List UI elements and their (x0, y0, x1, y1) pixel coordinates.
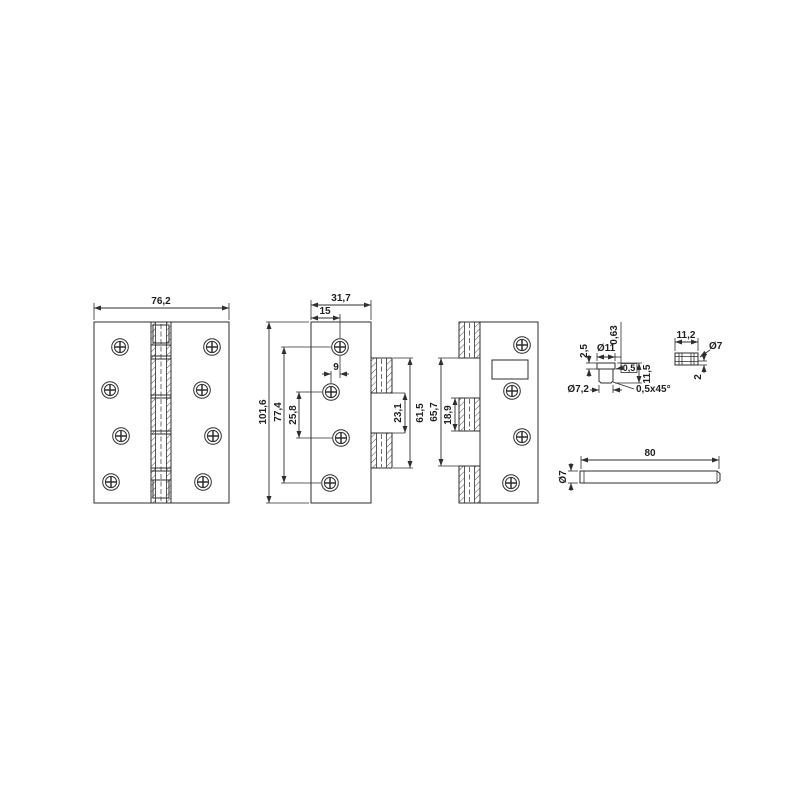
leaf-b-knuckles (459, 322, 480, 503)
screw-hole (323, 384, 340, 401)
screw-hole (205, 428, 222, 445)
pin-view: 80 Ø7 (558, 448, 720, 491)
dim-knuckle-span-a: 61,5 (415, 403, 426, 423)
screw-hole (113, 428, 130, 445)
dim-bushing-height: 11,5 (642, 364, 653, 383)
bushing-detail: Ø11 0,63 2,5 0,5 11,5 Ø7,2 0,5x45° (567, 322, 670, 395)
leaf-a-plate (311, 322, 371, 503)
dim-center-knuckle: 18,9 (443, 405, 454, 425)
leaf-a-side-view: 23,1 61,5 31,7 15 101,6 77,4 25,8 9 (258, 293, 426, 503)
screw-hole (103, 474, 120, 491)
screw-hole (514, 337, 531, 354)
screw-hole (514, 429, 531, 446)
dim-knuckle-gap: 23,1 (393, 403, 404, 423)
dim-chamfer: 0,5x45° (636, 384, 671, 395)
dim-shank-diameter: Ø7,2 (567, 384, 589, 395)
dim-leaf-height: 101,6 (258, 399, 269, 424)
dim-hole-span: 77,4 (273, 402, 284, 422)
dim-sleeve-length: 11,2 (677, 330, 696, 341)
front-view: 76,2 (94, 296, 229, 503)
dim-knuckle-span-b: 65,7 (429, 402, 440, 422)
dim-pin-diameter: Ø7 (558, 470, 569, 484)
dim-clearance: 0,63 (609, 325, 620, 345)
dim-front-width: 76,2 (151, 296, 171, 307)
technical-drawing-page: 76,2 23,1 61,5 (0, 0, 800, 800)
dim-hole-stagger: 9 (333, 362, 339, 373)
screw-hole (204, 339, 221, 356)
screw-hole (102, 382, 119, 399)
dim-leaf-width: 31,7 (331, 293, 351, 304)
pin-body (580, 471, 720, 483)
screw-hole (322, 475, 339, 492)
screw-hole (112, 339, 129, 356)
screw-hole (503, 475, 520, 492)
dim-hole-inset: 15 (319, 306, 331, 317)
leaf-a-knuckles (371, 358, 392, 468)
screw-hole (333, 430, 350, 447)
screw-hole (504, 383, 521, 400)
screw-hole (332, 339, 349, 356)
dim-sleeve-diameter: Ø7 (709, 341, 723, 352)
screw-hole (195, 474, 212, 491)
dim-step: 0,5 (623, 363, 636, 373)
sleeve-detail: 11,2 Ø7 2 (675, 330, 723, 380)
barrel-hatch-right (166, 323, 170, 503)
dim-sleeve-wall: 2 (693, 374, 704, 380)
bushing-cap (597, 363, 615, 369)
dim-pin-length: 80 (644, 448, 656, 459)
leaf-b-side-view: 65,7 18,9 (429, 322, 538, 503)
hinge-drawing: 76,2 23,1 61,5 (0, 0, 800, 800)
sleeve-body (675, 353, 698, 365)
screw-hole (194, 382, 211, 399)
leaf-b-slot (492, 360, 528, 379)
barrel-hatch-left (152, 323, 156, 503)
bushing-knurled-body (599, 369, 613, 383)
dim-cap-height: 2,5 (579, 344, 590, 358)
dim-hole-pitch: 25,8 (288, 405, 299, 425)
